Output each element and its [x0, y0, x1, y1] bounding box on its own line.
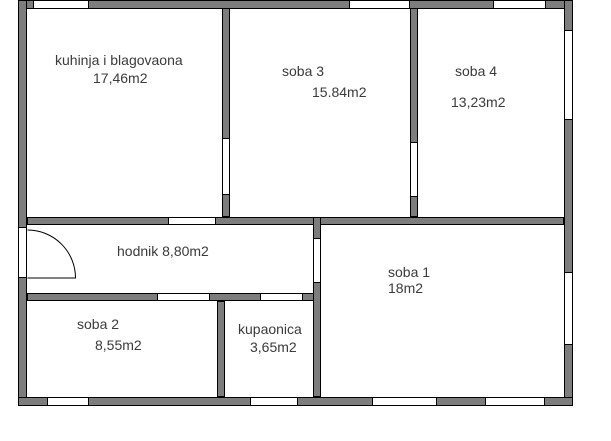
room-label-soba4-name: soba 4 [455, 64, 497, 79]
window-kupaonica-bottom [250, 397, 298, 406]
room-label-soba3-name: soba 3 [282, 64, 324, 79]
room-label-soba1-name: soba 1 [388, 265, 430, 280]
room-label-kitchen-area: 17,46m2 [93, 71, 147, 86]
window-soba2-bottom [47, 397, 89, 406]
window-soba4-top [493, 0, 546, 9]
floor-plan: kuhinja i blagovaona 17,46m2 soba 3 15.8… [0, 0, 611, 441]
entrance-door-swing-arc [27, 229, 78, 280]
wall-outer-left [18, 0, 27, 406]
wall-middle-horizontal [27, 217, 564, 225]
window-soba1-bottom-right [485, 397, 545, 406]
door-opening-soba2 [157, 293, 210, 301]
room-label-soba3-area: 15.84m2 [312, 85, 366, 100]
door-opening-soba1 [313, 238, 321, 283]
room-label-kupaonica-area: 3,65m2 [250, 340, 297, 355]
room-label-soba2-area: 8,55m2 [95, 338, 142, 353]
room-label-hodnik: hodnik 8,80m2 [117, 244, 209, 259]
wall-soba2-kupaonica [217, 301, 225, 397]
door-opening-kitchen [168, 217, 216, 225]
window-soba1-bottom-left [372, 397, 437, 406]
window-kitchen-top [33, 0, 89, 9]
room-label-kitchen-name: kuhinja i blagovaona [55, 53, 183, 68]
window-soba3-top [349, 0, 410, 9]
room-label-kupaonica-name: kupaonica [238, 322, 302, 337]
door-opening-kitchen-soba3 [222, 138, 230, 195]
wall-outer-top [18, 0, 573, 9]
door-opening-entrance [18, 227, 27, 278]
window-soba4-right [564, 30, 573, 120]
door-opening-kupaonica [260, 293, 303, 301]
door-opening-soba3-soba4 [410, 142, 418, 197]
window-soba1-right [564, 272, 573, 345]
room-label-soba1-area: 18m2 [388, 281, 423, 296]
room-label-soba2-name: soba 2 [77, 317, 119, 332]
room-label-soba4-area: 13,23m2 [451, 95, 505, 110]
